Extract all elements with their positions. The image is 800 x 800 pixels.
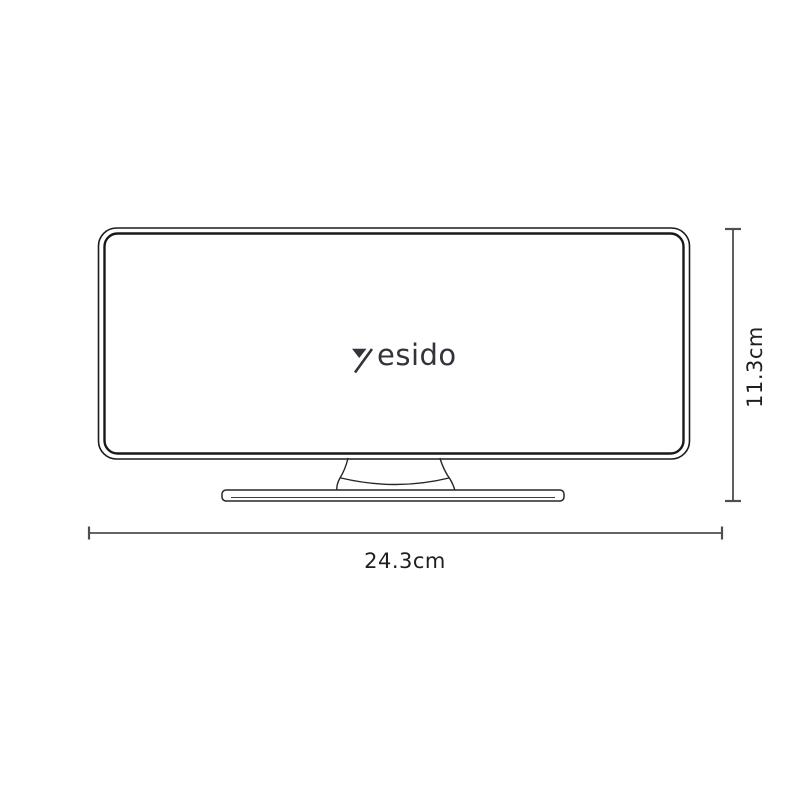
width-label: 24.3cm — [364, 549, 446, 573]
stand-neck-right-edge — [440, 459, 455, 492]
product-dimension-diagram: esido 24.3cm 11.3cm — [0, 0, 800, 800]
diagram-svg: esido 24.3cm 11.3cm — [0, 0, 800, 800]
stand-neck — [337, 459, 455, 492]
height-label: 11.3cm — [743, 326, 767, 408]
stand-neck-joint-curve — [341, 478, 449, 485]
stand-neck-left-edge — [337, 459, 348, 492]
stand-base-slab — [222, 490, 564, 501]
stand-base — [222, 490, 564, 501]
height-dimension: 11.3cm — [725, 229, 767, 501]
logo-text: esido — [377, 338, 457, 372]
width-dimension: 24.3cm — [89, 527, 722, 574]
